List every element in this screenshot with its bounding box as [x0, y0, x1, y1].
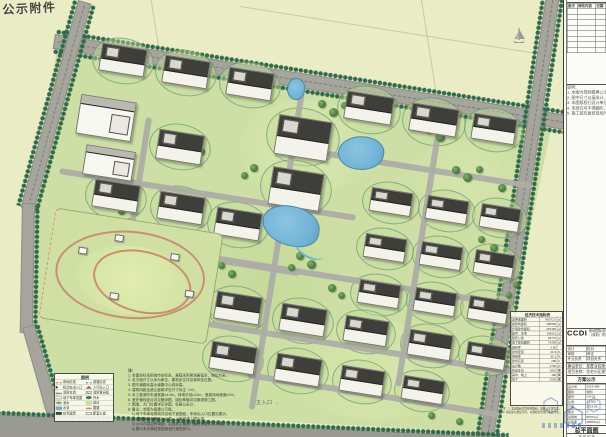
signature-field-row: 审核 审定	[567, 351, 606, 356]
titleblock-description-line: 5. 施工前应复核现场尺寸。	[567, 111, 606, 116]
legend-item: 住宅建筑	[55, 411, 85, 415]
red-dash-legend-symbol	[56, 382, 62, 383]
legend-rows: 用地红线道路红线机动车出入口人行出入口消防车道消防登高面地下车库范围乔木灌木草坪…	[55, 379, 114, 415]
park-pavilion	[184, 290, 194, 298]
signature-field-row: 专业负责 项目负责	[567, 356, 606, 361]
signature-field: 审核	[567, 352, 587, 357]
tree	[318, 100, 326, 108]
indicator-table: 经济技术指标表 总用地面积86072.5㎡总建筑面积286590㎡计容建筑面积2…	[510, 311, 563, 406]
signature-field: 项目负责	[587, 357, 606, 362]
tree	[456, 418, 463, 425]
legend-item-label: 消防车道	[63, 390, 76, 394]
revision-cell	[567, 47, 577, 53]
tree	[328, 284, 336, 292]
legend-item-label: 配套公建	[93, 411, 106, 415]
design-firm-logo: CCDI 悉地国际设计顾问（深圳）有限公司	[567, 328, 606, 344]
water-legend-symbol	[56, 407, 62, 410]
notes-lines: 1. 本图坐标采用城市坐标系，高程采用黄海高程系，单位为米。2. 总平面尺寸以米…	[128, 373, 246, 431]
revision-row	[567, 47, 606, 53]
tree	[478, 236, 485, 243]
legend-item: 配套公建	[85, 411, 114, 415]
tree	[498, 184, 506, 192]
revision-cell	[596, 47, 606, 53]
main-entrance-label: 主入口 →	[256, 399, 280, 406]
tree	[463, 173, 472, 182]
park-pavilion	[114, 234, 124, 242]
grass-legend-symbol	[86, 401, 92, 404]
notes-block: 注： 1. 本图坐标采用城市坐标系，高程采用黄海高程系，单位为米。2. 总平面尺…	[128, 368, 246, 434]
indicator-cell: 地下	[511, 377, 539, 382]
legend-item-label: 乔木	[93, 395, 99, 399]
pub-legend-symbol	[86, 412, 92, 415]
legend-item-label: 消防登高面	[93, 390, 109, 394]
legend-item: 用地红线	[55, 380, 85, 384]
titleblock-description: 说明：1. 本图为规划报建公示图。2. 图中尺寸以毫米计，标高以米计。3. 本图…	[567, 84, 606, 120]
signature-field: 审定	[587, 352, 606, 357]
tree-legend-symbol	[86, 396, 92, 399]
public-notice-stamp: 公示附件	[2, 0, 57, 18]
tree	[329, 108, 338, 117]
legend-item-label: 灌木	[63, 401, 69, 405]
public-building-footprint	[75, 94, 137, 142]
blue-dash-legend-symbol	[86, 382, 92, 383]
park-pavilion	[109, 292, 119, 300]
tree	[506, 292, 512, 298]
indicator-row: 地下1630辆	[511, 377, 563, 382]
legend-item: 消防车道	[55, 390, 85, 394]
legend-item: 水景	[55, 406, 85, 410]
company-name: 悉地国际设计顾问（深圳）有限公司	[589, 329, 606, 337]
outline-legend-symbol	[56, 396, 62, 399]
legend-row: 用地红线道路红线	[55, 379, 114, 384]
legend-item-label: 地下车库范围	[63, 395, 82, 399]
legend-row: 水景园路	[55, 405, 114, 410]
legend-row: 机动车出入口人行出入口	[55, 384, 114, 389]
legend-item-label: 道路红线	[93, 380, 106, 384]
tree	[241, 172, 248, 179]
project-info-line: 建设单位：某置业有限公司	[567, 363, 606, 369]
legend-item: 消防登高面	[85, 390, 114, 394]
signature-field: 专业负责	[567, 357, 587, 362]
legend-item: 人行出入口	[85, 385, 114, 389]
shrub-legend-symbol	[56, 402, 62, 404]
signature-fields: 设计 校对 审核 审定 专业负责 项目负责	[567, 345, 606, 361]
legend-item-label: 机动车出入口	[63, 385, 82, 389]
line-legend-symbol	[56, 393, 62, 394]
logo-mark: CCDI	[567, 329, 587, 338]
indicator-table-grid: 总用地面积86072.5㎡总建筑面积286590㎡计容建筑面积215181㎡其中…	[511, 317, 563, 382]
signature-field: 校对	[587, 347, 606, 352]
legend-item-label: 园路	[93, 406, 99, 410]
title-block: 版次修改内容日期 说明：1. 本图为规划报建公示图。2. 图中尺寸以毫米计，标高…	[563, 0, 606, 437]
tree	[513, 282, 519, 288]
revision-cell	[577, 47, 595, 53]
project-info: 建设单位：某置业有限公司项目名称：住宅小区规划（二期）	[567, 362, 606, 374]
tree	[452, 166, 460, 174]
titleblock-stats-table: 设计号2013-088图别规划图号GH-01比例1:1000日期2014.06版…	[567, 383, 606, 424]
legend-item: 园路	[85, 406, 114, 410]
residential-building-footprint	[273, 114, 333, 162]
bld-legend-symbol	[56, 412, 62, 415]
legend-item-label: 人行出入口	[93, 385, 109, 389]
legend-row: 灌木草坪	[55, 400, 114, 405]
legend-item: 机动车出入口	[55, 385, 85, 389]
legend-item: 灌木	[55, 401, 85, 405]
site-plan-drawing: 主入口 → 图例 用地红线道路红线机动车出入口人行出入口消防车道消防登高面地下车…	[0, 0, 606, 437]
indicator-footnotes: 注：1. 本表面积均为预测面积，最终以实测为准。2. 指标如与批复不符，以规划主…	[503, 407, 563, 425]
stage-label: 方案公示	[567, 375, 606, 382]
hatch-legend-symbol	[86, 391, 92, 394]
drawing-title: 总平面图	[567, 425, 606, 433]
park-pavilion	[78, 246, 88, 254]
legend-item-label: 住宅建筑	[63, 411, 76, 415]
legend-item-label: 草坪	[93, 401, 99, 405]
revision-header-row: 版次修改内容日期	[567, 3, 606, 9]
legend-item: 地下车库范围	[55, 395, 85, 399]
legend-item: 草坪	[85, 401, 114, 405]
tree	[428, 412, 435, 419]
note-line: 4) 图中未尽事宜按国家现行规范执行。	[128, 426, 246, 431]
tree	[288, 264, 295, 271]
revision-table: 版次修改内容日期	[567, 2, 606, 59]
legend-row: 地下车库范围乔木	[55, 395, 114, 400]
legend-row: 消防车道消防登高面	[55, 390, 114, 395]
legend-item: 乔木	[85, 395, 114, 399]
arrow-legend-symbol	[56, 386, 62, 389]
signature-field-row: 设计 校对	[567, 346, 606, 351]
project-info-line: 项目名称：住宅小区规划（二期）	[567, 369, 606, 375]
indicator-cell: 1630	[539, 377, 557, 382]
legend-item: 道路红线	[85, 380, 114, 384]
indicator-footnote: 2. 指标如与批复不符，以规划主管部门批复为准。	[503, 411, 563, 415]
arrow2-legend-symbol	[86, 386, 92, 389]
legend-row: 住宅建筑配套公建	[55, 410, 114, 415]
tree	[338, 292, 345, 299]
legend-item-label: 水景	[63, 406, 69, 410]
tree	[476, 166, 483, 173]
tree	[307, 260, 316, 269]
tree	[250, 164, 258, 172]
legend-box: 图例 用地红线道路红线机动车出入口人行出入口消防车道消防登高面地下车库范围乔木灌…	[54, 373, 114, 422]
path-legend-symbol	[86, 408, 92, 410]
sheet-count: 共1张 第1张	[567, 433, 606, 437]
tree	[228, 270, 236, 278]
sailboat-icon	[511, 27, 527, 52]
signature-field: 设计	[567, 347, 587, 352]
legend-item-label: 用地红线	[63, 380, 76, 384]
park-pavilion	[170, 253, 180, 261]
